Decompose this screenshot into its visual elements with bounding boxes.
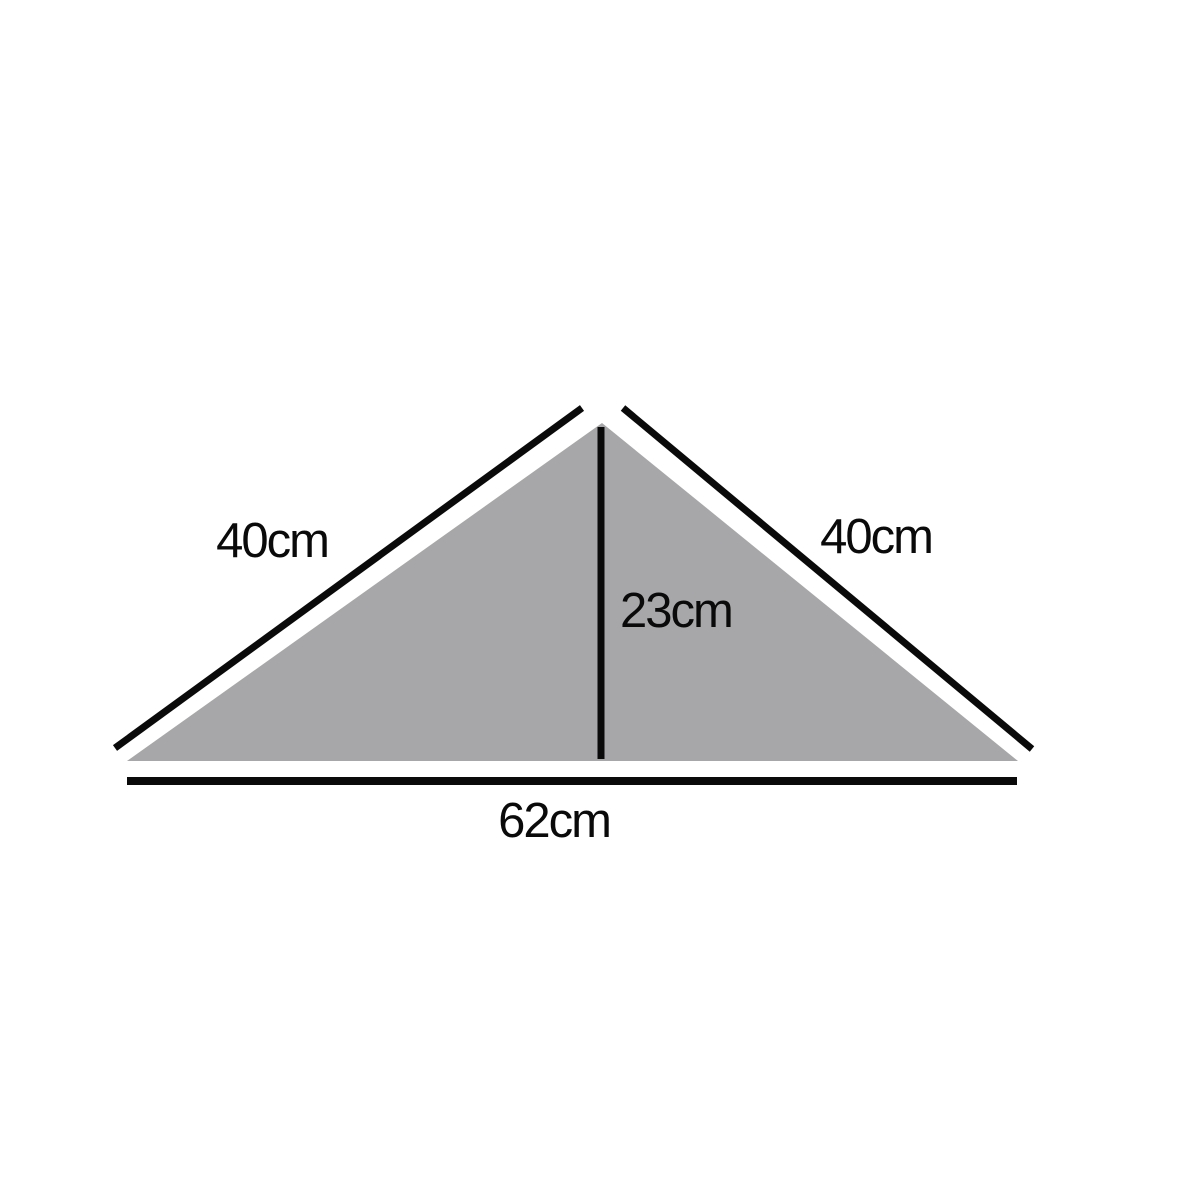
base-length-label: 62cm [498, 794, 610, 848]
right-side-length-label: 40cm [820, 510, 932, 564]
left-side-length-label: 40cm [216, 514, 328, 568]
triangle-shape [127, 423, 1018, 761]
triangle-diagram: 40cm 40cm 23cm 62cm [0, 0, 1200, 1200]
diagram-canvas: 40cm 40cm 23cm 62cm [0, 0, 1200, 1200]
height-length-label: 23cm [620, 584, 732, 638]
